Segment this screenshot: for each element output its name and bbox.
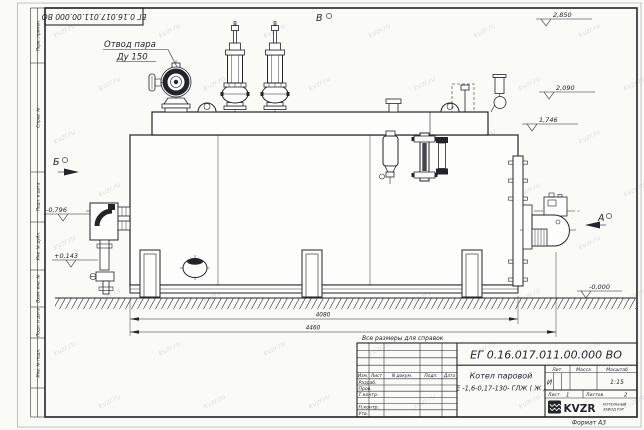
logo-icon — [548, 401, 561, 414]
sheet-label: Лист — [547, 392, 560, 398]
drawing-sheet: kvzr.rukvzr.rukvzr.rukvzr.rukvzr.rukvzr.… — [0, 0, 644, 430]
sheet-value: 1 — [566, 392, 569, 398]
elevation-value: 2,090 — [556, 84, 575, 92]
scale-value: 1:15 — [610, 379, 624, 386]
col-izm: Изм. — [358, 373, 368, 379]
frame-column-label: Взам. инв. № — [35, 274, 40, 303]
mass-label: Масса — [576, 367, 591, 373]
reference-note: Все размеры для справок — [362, 335, 444, 342]
row-prov: Пров. — [359, 386, 372, 392]
row-razrab: Разраб. — [359, 380, 377, 386]
frame-column-label: Инв. № дубл. — [35, 232, 40, 261]
scale-label: Масштаб — [606, 367, 628, 373]
product-designation: Е -1,6-0,17-130- ГЛЖ ( Ж ) — [456, 385, 546, 393]
ground-hatch — [55, 298, 636, 309]
lit-value: И — [547, 379, 553, 387]
dimension-value: 4080 — [316, 313, 331, 319]
view-letter: В — [316, 13, 323, 24]
elevation-value: -0,796 — [46, 206, 67, 214]
row-tkontr: Т.контр. — [359, 392, 379, 398]
col-data: Дата — [443, 373, 456, 379]
brand-subtitle: ЗАВОД РЭР — [603, 408, 625, 412]
elevation-value: 2,850 — [553, 11, 572, 19]
burner-motor — [532, 229, 547, 246]
elevation-value: 1,746 — [539, 116, 558, 124]
gauge-glass — [439, 143, 446, 169]
sheets-label: Листов — [585, 392, 603, 398]
callout-text: Отвод пара — [104, 40, 156, 50]
view-letter: Б — [53, 157, 60, 168]
doc-number-inverted: ЕГ 0.16.017.011.00.000 ВО — [42, 12, 147, 21]
support-leg — [302, 250, 322, 297]
brand-subtitle: КОТЕЛЬНЫЙ — [603, 402, 627, 407]
lit-label: Лит. — [551, 367, 563, 373]
product-name: Котел паровой — [470, 372, 533, 381]
support-leg — [140, 250, 160, 297]
row-utv: Утв. — [359, 411, 369, 417]
frame-column-label: Инв. № подл. — [35, 349, 40, 378]
ground — [55, 298, 636, 309]
brand-text: KVZR — [564, 403, 596, 415]
support-leg — [462, 250, 482, 297]
frame-column-label: Справ. № — [35, 107, 40, 128]
steam-drum — [152, 112, 488, 135]
col-docnum: N докум. — [392, 373, 412, 379]
doc-number: ЕГ 0.16.017.011.00.000 ВО — [470, 349, 622, 362]
col-list: Лист — [370, 373, 383, 379]
format-note: Формат А3 — [572, 420, 606, 427]
row-nkontr: Н.контр. — [359, 405, 380, 411]
frame-column-label: Подп. и дата — [35, 308, 40, 337]
frame-column-label: Подп. и дата — [35, 182, 40, 211]
callout-text: Ду 150 — [116, 53, 148, 63]
sheets-value: 2 — [624, 392, 628, 398]
col-podp: Подп. — [424, 373, 437, 379]
dimension-value: 4460 — [306, 326, 321, 332]
elevation-value: -0,000 — [589, 283, 610, 291]
elevation-value: +0,143 — [54, 252, 78, 260]
frame-column-label: Перв. примен. — [35, 20, 40, 51]
